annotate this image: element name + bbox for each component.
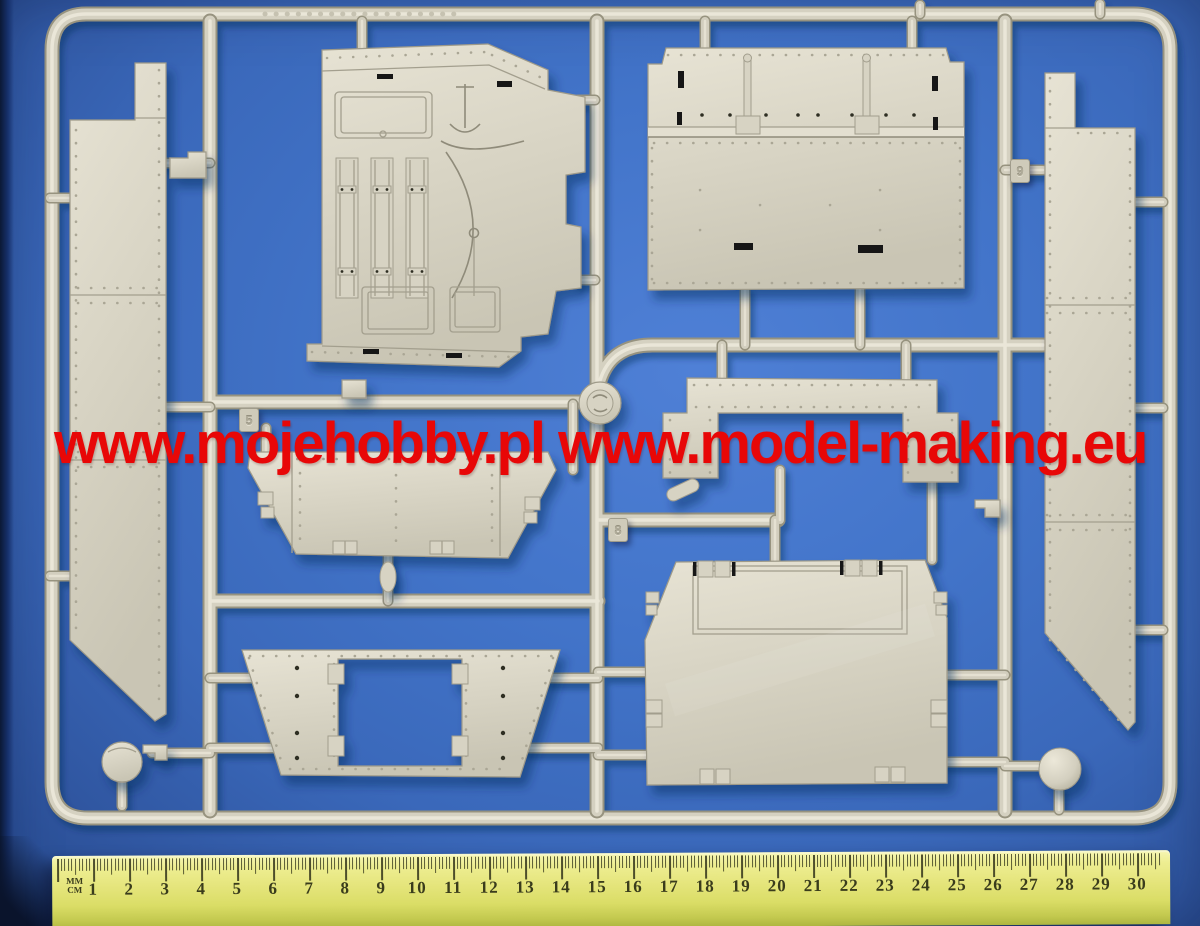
ruler-tick — [1069, 854, 1070, 866]
ruler-tick — [503, 857, 504, 869]
ruler-tick — [763, 855, 764, 867]
ruler-unit-cm: CM — [66, 886, 83, 895]
ruler-tick — [478, 857, 479, 869]
ruler-tick — [259, 858, 260, 870]
ruler-tick — [964, 854, 965, 866]
ruler-number: 17 — [660, 877, 679, 897]
ruler-unit-label: MM CM — [66, 877, 83, 895]
ruler-tick — [485, 857, 486, 869]
ruler-tick — [233, 858, 234, 870]
ruler-tick — [899, 855, 900, 867]
ruler-number: 19 — [732, 876, 751, 896]
ruler-tick — [615, 856, 616, 872]
ruler-tick — [57, 859, 59, 882]
ruler-tick — [644, 856, 645, 868]
ruler-tick — [374, 857, 375, 869]
ruler-tick — [662, 856, 663, 868]
ruler-tick — [539, 856, 540, 868]
ruler-tick — [950, 854, 951, 866]
ruler-tick — [842, 855, 843, 867]
ruler-tick — [518, 857, 519, 869]
ruler-tick — [1029, 854, 1031, 877]
part-number-tag: 8 — [608, 518, 628, 542]
ruler-tick — [687, 856, 688, 872]
ruler-tick — [788, 855, 789, 867]
ruler-tick — [1130, 853, 1131, 865]
ruler-tick — [777, 855, 779, 878]
ruler-tick — [219, 858, 220, 874]
ruler-number: 14 — [552, 877, 571, 897]
ruler-tick — [1007, 854, 1008, 866]
ruler-tick — [680, 856, 681, 868]
ruler-tick — [698, 856, 699, 868]
ruler-tick — [997, 854, 998, 866]
ruler-tick — [352, 857, 353, 869]
ruler-tick — [766, 855, 767, 867]
ruler-tick — [1137, 853, 1139, 876]
ruler-tick — [363, 857, 364, 873]
ruler-number: 3 — [160, 879, 170, 899]
ruler-tick — [1004, 854, 1005, 866]
ruler-tick — [115, 859, 116, 871]
ruler-tick — [752, 855, 753, 867]
ruler-tick — [413, 857, 414, 869]
ruler-tick — [482, 857, 483, 869]
ruler-tick — [129, 859, 131, 882]
ruler-tick — [1101, 853, 1103, 876]
ruler-tick — [205, 858, 206, 870]
ruler-tick — [1108, 853, 1109, 865]
ruler-tick — [453, 857, 455, 880]
ruler-tick — [244, 858, 245, 870]
ruler-tick — [287, 858, 288, 870]
ruler-tick — [701, 856, 702, 868]
ruler-tick — [824, 855, 825, 867]
ruler-tick — [107, 859, 108, 871]
ruler-tick — [1076, 854, 1077, 866]
ruler-tick — [147, 858, 148, 874]
ruler-tick — [982, 854, 983, 866]
ruler-tick — [212, 858, 213, 870]
ruler-tick — [133, 859, 134, 871]
ruler-tick — [82, 859, 83, 871]
ruler-tick — [561, 856, 563, 879]
ruler-tick — [79, 859, 80, 871]
ruler-tick — [431, 857, 432, 869]
ruler-tick — [399, 857, 400, 873]
ruler-tick — [604, 856, 605, 868]
ruler-number: 29 — [1092, 874, 1111, 894]
ruler-number: 8 — [340, 878, 350, 898]
ruler-tick — [863, 855, 864, 867]
ruler-tick — [820, 855, 821, 867]
ruler-tick — [104, 859, 105, 871]
ruler-tick — [395, 857, 396, 869]
ruler-tick — [651, 856, 652, 872]
ruler-tick — [262, 858, 263, 870]
ruler-tick — [442, 857, 443, 869]
ruler-tick — [640, 856, 641, 868]
ruler-tick — [935, 854, 936, 866]
ruler-tick — [903, 855, 904, 871]
ruler-tick — [881, 855, 882, 867]
ruler-tick — [712, 856, 713, 868]
ruler-tick — [507, 857, 508, 873]
ruler-tick — [457, 857, 458, 869]
ruler-tick — [1040, 854, 1041, 866]
ruler-tick — [1133, 853, 1134, 865]
ruler-number: 9 — [376, 878, 386, 898]
ruler-tick — [849, 855, 851, 878]
ruler-tick — [269, 858, 270, 870]
ruler-tick — [914, 854, 915, 866]
ruler-tick — [673, 856, 674, 868]
ruler-tick — [493, 857, 494, 869]
ruler-tick — [158, 858, 159, 870]
ruler-tick — [403, 857, 404, 869]
ruler-tick — [773, 855, 774, 867]
ruler-tick — [241, 858, 242, 870]
ruler-tick — [521, 857, 522, 869]
ruler-tick — [421, 857, 422, 869]
ruler-tick — [928, 854, 929, 866]
ruler-tick — [187, 858, 188, 870]
ruler-tick — [1051, 854, 1052, 866]
ruler-tick — [424, 857, 425, 869]
left-side-armor-panel — [70, 63, 166, 721]
ruler-tick — [795, 855, 796, 871]
ruler-tick — [381, 857, 383, 880]
ruler-tick — [1079, 854, 1080, 866]
ruler-tick — [280, 858, 281, 870]
ruler-tick — [554, 856, 555, 868]
ruler-tick — [601, 856, 602, 868]
ruler-tick — [489, 857, 491, 880]
ruler-tick — [943, 854, 944, 866]
ruler-tick — [770, 855, 771, 867]
ruler-tick — [647, 856, 648, 868]
ruler-tick — [579, 856, 580, 872]
ruler-tick — [89, 859, 90, 871]
ruler-tick — [939, 854, 940, 870]
ruler-tick — [583, 856, 584, 868]
ruler-tick — [1141, 853, 1142, 865]
ruler-tick — [748, 855, 749, 867]
ruler-tick — [629, 856, 630, 868]
ruler-number: 13 — [516, 877, 535, 897]
ruler-tick — [183, 858, 184, 874]
ruler-tick — [759, 855, 760, 871]
ruler-number: 2 — [124, 880, 134, 900]
ruler-number: 25 — [948, 875, 967, 895]
ruler-tick — [1036, 854, 1037, 866]
ruler-tick — [323, 858, 324, 870]
ruler-tick — [111, 859, 112, 875]
ruler-tick — [475, 857, 476, 869]
ruler-tick — [838, 855, 839, 867]
ruler-tick — [136, 859, 137, 871]
ruler-tick — [709, 856, 710, 868]
ruler-tick — [741, 855, 743, 878]
ruler-number: 15 — [588, 877, 607, 897]
ruler-tick — [93, 859, 95, 882]
ruler-tick — [68, 859, 69, 871]
ruler-tick — [536, 856, 537, 868]
ruler-tick — [460, 857, 461, 869]
ruler-tick — [496, 857, 497, 869]
ruler-tick — [1065, 854, 1067, 877]
ruler-tick — [388, 857, 389, 869]
ruler-tick — [356, 857, 357, 869]
ruler-tick — [737, 855, 738, 867]
part-number-tag: 9 — [1010, 159, 1030, 183]
ruler-tick — [349, 857, 350, 869]
ruler-tick — [316, 858, 317, 870]
ruler-tick — [1025, 854, 1026, 866]
ruler-tick — [1022, 854, 1023, 866]
ruler-tick — [683, 856, 684, 868]
ruler-tick — [226, 858, 227, 870]
ruler-tick — [529, 856, 530, 868]
ruler-tick — [237, 858, 239, 881]
ruler-tick — [619, 856, 620, 868]
ruler-tick — [1043, 854, 1044, 866]
ruler-tick — [1033, 854, 1034, 866]
ruler-tick — [118, 859, 119, 871]
ruler-tick — [953, 854, 954, 866]
ruler-tick — [856, 855, 857, 867]
ruler-tick — [277, 858, 278, 870]
ruler-tick — [878, 855, 879, 867]
ruler-tick — [313, 858, 314, 870]
ruler-tick — [86, 859, 87, 871]
ruler-tick — [338, 857, 339, 869]
ball-mount — [1039, 748, 1081, 790]
part-number-label: 8 — [614, 523, 621, 538]
ruler-tick — [734, 855, 735, 867]
floor-planks — [336, 158, 428, 298]
ruler-tick — [791, 855, 792, 867]
ruler-tick — [622, 856, 623, 868]
ruler-tick — [867, 855, 868, 871]
ruler-tick — [716, 856, 717, 868]
ruler-tick — [197, 858, 198, 870]
ruler-tick — [251, 858, 252, 870]
ruler-tick — [1054, 854, 1055, 866]
ruler-tick — [248, 858, 249, 870]
photo-stage: 5 8 9 MM CM 1234567891011121314151617181… — [0, 0, 1200, 926]
ruler-tick — [341, 857, 342, 869]
ruler-tick — [291, 858, 292, 874]
ruler-tick — [543, 856, 544, 872]
ruler-tick — [676, 856, 677, 868]
ruler-tick — [957, 854, 959, 877]
ruler-tick — [1112, 853, 1113, 865]
ruler-tick — [907, 855, 908, 867]
ruler-tick — [568, 856, 569, 868]
ruler-tick — [359, 857, 360, 869]
upper-rear-hull-panel — [648, 48, 964, 290]
ruler-number: 22 — [840, 876, 859, 896]
ruler-tick — [817, 855, 818, 867]
ruler-tick — [309, 858, 311, 881]
ruler-tick — [655, 856, 656, 868]
ruler-tick — [1072, 854, 1073, 866]
ruler-tick — [921, 854, 923, 877]
ruler-number: 1 — [88, 880, 98, 900]
ruler-tick — [446, 857, 447, 869]
ruler-number: 21 — [804, 876, 823, 896]
ruler: MM CM 1234567891011121314151617181920212… — [52, 850, 1170, 926]
ruler-tick — [719, 856, 720, 868]
ruler-tick — [255, 858, 256, 874]
ruler-tick — [917, 854, 918, 866]
ruler-tick — [694, 856, 695, 868]
ruler-tick — [835, 855, 836, 867]
ruler-tick — [831, 855, 832, 871]
ruler-tick — [968, 854, 969, 866]
ruler-tick — [626, 856, 627, 868]
ruler-tick — [140, 859, 141, 871]
ruler-number: 30 — [1128, 874, 1147, 894]
ruler-tick — [705, 856, 707, 879]
ruler-tick — [122, 859, 123, 871]
ruler-tick — [75, 859, 76, 875]
ruler-tick — [586, 856, 587, 868]
ruler-tick — [745, 855, 746, 867]
ruler-tick — [100, 859, 101, 871]
ruler-tick — [525, 857, 527, 880]
right-side-armor-panel — [1045, 73, 1135, 730]
ruler-tick — [665, 856, 666, 868]
ruler-tick — [889, 855, 890, 867]
ruler-number: 4 — [196, 879, 206, 899]
ruler-tick — [1144, 853, 1145, 865]
ruler-tick — [406, 857, 407, 869]
ruler-tick — [853, 855, 854, 867]
ruler-tick — [1090, 854, 1091, 866]
ruler-tick — [637, 856, 638, 868]
ruler-tick — [730, 855, 731, 867]
ruler-tick — [550, 856, 551, 868]
ruler-tick — [572, 856, 573, 868]
ruler-tick — [97, 859, 98, 871]
hull-roof-panel — [307, 44, 585, 367]
ruler-tick — [169, 858, 170, 870]
ruler-number: 27 — [1020, 875, 1039, 895]
ruler-tick — [172, 858, 173, 870]
ruler-tick — [575, 856, 576, 868]
ruler-tick — [845, 855, 846, 867]
ruler-tick — [1061, 854, 1062, 866]
ruler-number: 10 — [408, 878, 427, 898]
ruler-tick — [151, 858, 152, 870]
ruler-tick — [367, 857, 368, 869]
ruler-tick — [871, 855, 872, 867]
ruler-tick — [331, 858, 332, 870]
ruler-tick — [125, 859, 126, 871]
ruler-tick — [910, 855, 911, 867]
ruler-tick — [597, 856, 599, 879]
ruler-tick — [464, 857, 465, 869]
ruler-tick — [1123, 853, 1124, 865]
ruler-tick — [417, 857, 419, 880]
ruler-tick — [201, 858, 203, 881]
ruler-number: 20 — [768, 876, 787, 896]
ruler-tick — [1097, 854, 1098, 866]
handle-rod — [744, 57, 751, 123]
ruler-tick — [1015, 854, 1016, 866]
ruler-tick — [1000, 854, 1001, 866]
rear-hull-plate — [645, 560, 947, 785]
ruler-tick — [1115, 853, 1116, 865]
ruler-tick — [370, 857, 371, 869]
ruler-tick — [590, 856, 591, 868]
ruler-tick — [428, 857, 429, 869]
ruler-tick — [1155, 853, 1156, 869]
step-bracket-part — [170, 152, 206, 178]
ruler-tick — [611, 856, 612, 868]
ruler-tick — [1018, 854, 1019, 866]
ruler-number: 6 — [268, 879, 278, 899]
ruler-tick — [511, 857, 512, 869]
ruler-tick — [892, 855, 893, 867]
sprue-gate — [380, 562, 396, 592]
ruler-tick — [179, 858, 180, 870]
ruler-tick — [727, 855, 728, 867]
ruler-tick — [500, 857, 501, 869]
cover-disc — [102, 742, 167, 782]
ruler-tick — [971, 854, 972, 866]
exhaust-stub-part — [665, 477, 701, 503]
ruler-tick — [1094, 854, 1095, 866]
photo-dark-corner — [0, 836, 60, 926]
ruler-tick — [813, 855, 815, 878]
ruler-tick — [439, 857, 440, 869]
ruler-tick — [565, 856, 566, 868]
ruler-tick — [860, 855, 861, 867]
ruler-tick — [298, 858, 299, 870]
ruler-tick — [961, 854, 962, 866]
ruler-tick — [633, 856, 635, 879]
ruler-tick — [802, 855, 803, 867]
ruler-tick — [755, 855, 756, 867]
ruler-tick — [64, 859, 65, 871]
ruler-tick — [547, 856, 548, 868]
ruler-tick — [1047, 854, 1048, 870]
ruler-tick — [691, 856, 692, 868]
ruler-tick — [176, 858, 177, 870]
ruler-tick — [61, 859, 62, 871]
ruler-tick — [1119, 853, 1120, 869]
ruler-tick — [989, 854, 990, 866]
ruler-tick — [194, 858, 195, 870]
ruler-tick — [71, 859, 72, 871]
ruler-number: 16 — [624, 877, 643, 897]
ruler-tick — [885, 855, 887, 878]
ruler-tick — [471, 857, 472, 873]
ruler-tick — [658, 856, 659, 868]
ruler-tick — [273, 858, 275, 881]
ruler-tick — [874, 855, 875, 867]
ruler-tick — [932, 854, 933, 866]
ruler-number: 24 — [912, 875, 931, 895]
ruler-tick — [385, 857, 386, 869]
ruler-tick — [377, 857, 378, 869]
ruler-number: 5 — [232, 879, 242, 899]
ruler-tick — [925, 854, 926, 866]
ruler-tick — [208, 858, 209, 870]
